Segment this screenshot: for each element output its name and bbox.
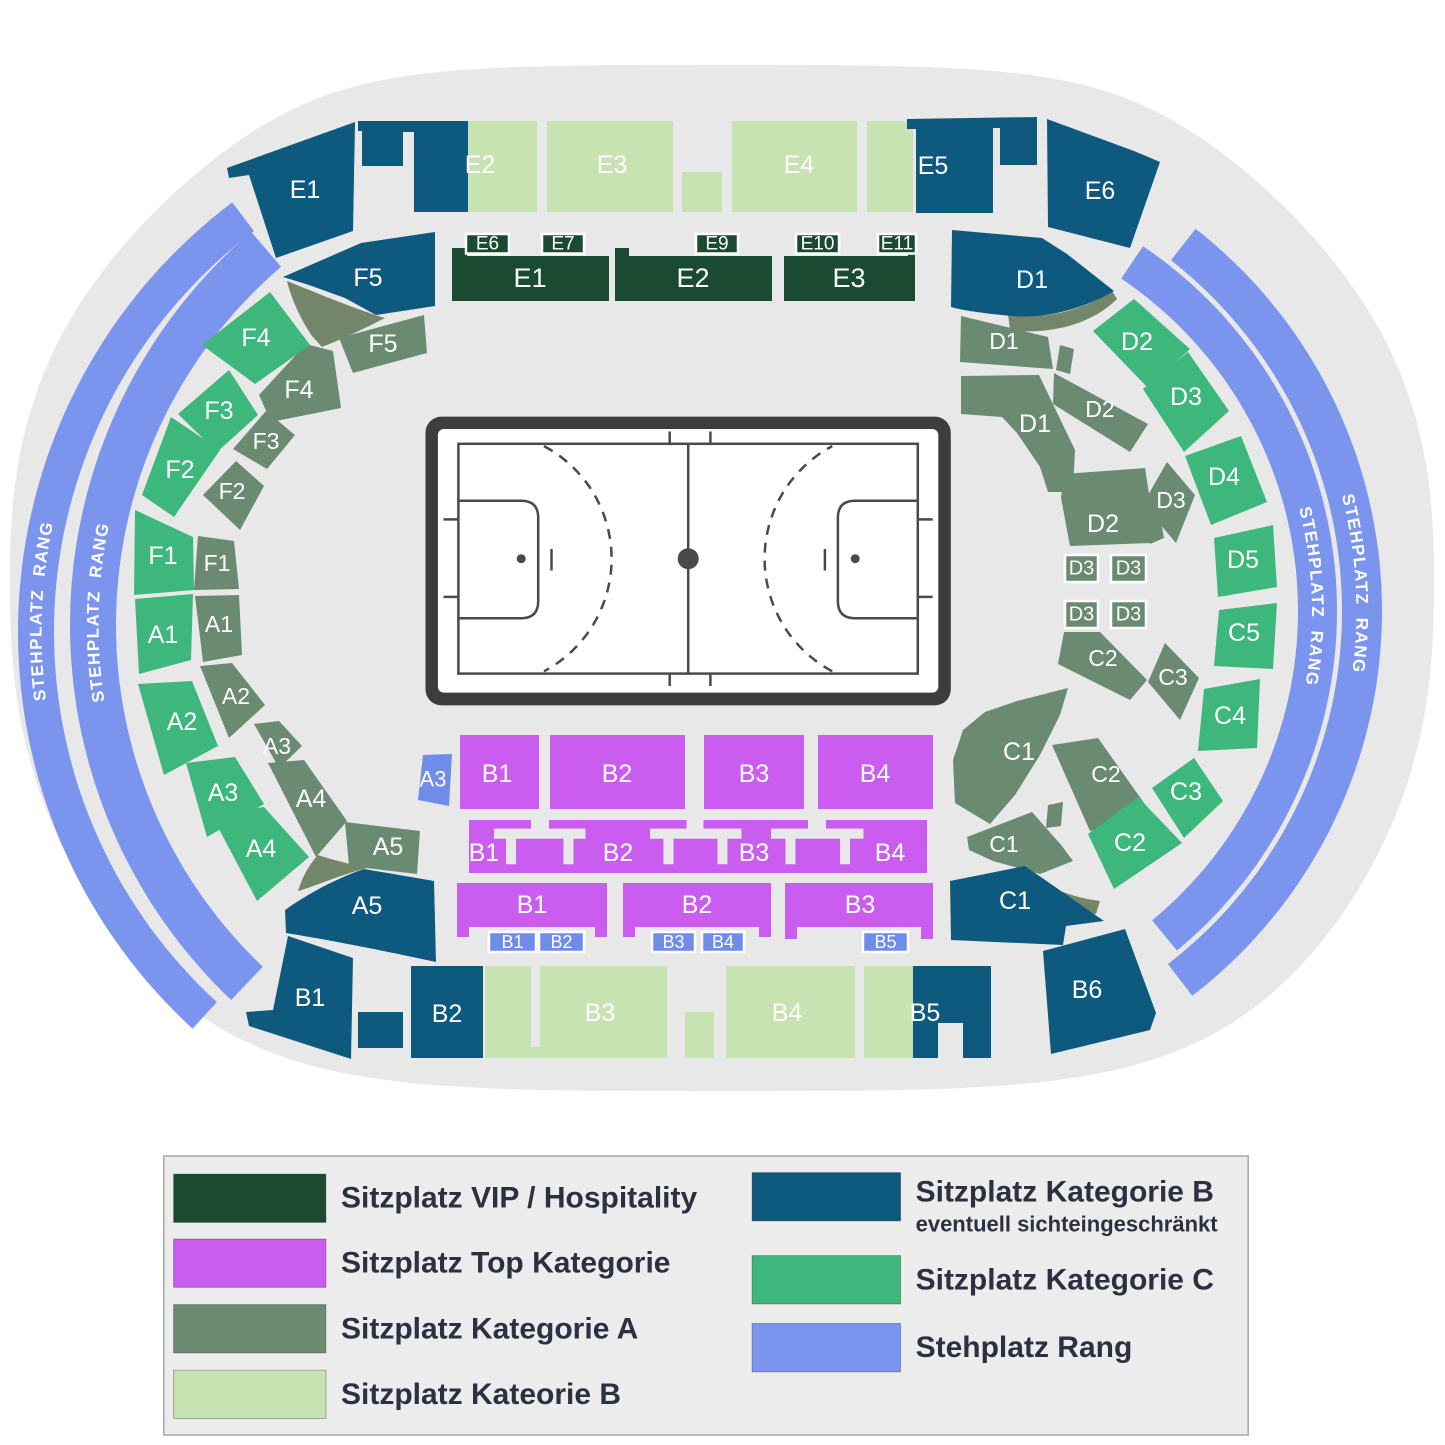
svg-text:D3: D3 bbox=[1170, 383, 1202, 411]
svg-text:A5: A5 bbox=[352, 892, 383, 920]
svg-text:E10: E10 bbox=[801, 234, 835, 255]
svg-text:C5: C5 bbox=[1228, 619, 1260, 647]
svg-text:D3: D3 bbox=[1116, 558, 1142, 580]
svg-text:F1: F1 bbox=[204, 550, 231, 576]
svg-text:B1: B1 bbox=[517, 891, 548, 919]
svg-text:D4: D4 bbox=[1208, 463, 1240, 491]
svg-text:F2: F2 bbox=[165, 456, 194, 484]
svg-text:F2: F2 bbox=[219, 478, 246, 504]
svg-text:E5: E5 bbox=[918, 152, 949, 180]
svg-text:B3: B3 bbox=[662, 932, 684, 952]
svg-text:B2: B2 bbox=[682, 891, 713, 919]
svg-text:A3: A3 bbox=[420, 767, 447, 792]
svg-text:B3: B3 bbox=[739, 760, 770, 788]
svg-text:B2: B2 bbox=[432, 1000, 463, 1028]
svg-text:B5: B5 bbox=[910, 999, 941, 1027]
svg-text:eventuell sichteingeschränkt: eventuell sichteingeschränkt bbox=[916, 1212, 1219, 1237]
svg-text:E3: E3 bbox=[597, 151, 628, 179]
svg-text:A3: A3 bbox=[208, 779, 239, 807]
svg-text:Sitzplatz Kategorie B: Sitzplatz Kategorie B bbox=[916, 1176, 1214, 1209]
svg-text:F4: F4 bbox=[241, 324, 270, 352]
svg-text:D1: D1 bbox=[989, 328, 1018, 354]
svg-text:C3: C3 bbox=[1170, 778, 1202, 806]
svg-text:Sitzplatz VIP / Hospitality: Sitzplatz VIP / Hospitality bbox=[341, 1182, 697, 1215]
svg-text:D5: D5 bbox=[1227, 546, 1259, 574]
svg-text:B5: B5 bbox=[874, 932, 896, 952]
svg-text:E4: E4 bbox=[784, 151, 815, 179]
svg-text:E2: E2 bbox=[465, 151, 496, 179]
svg-text:B4: B4 bbox=[860, 760, 891, 788]
svg-text:B4: B4 bbox=[712, 932, 734, 952]
svg-text:F4: F4 bbox=[284, 376, 313, 404]
svg-text:Stehplatz Rang: Stehplatz Rang bbox=[916, 1331, 1133, 1364]
svg-text:E9: E9 bbox=[705, 234, 728, 255]
svg-text:A2: A2 bbox=[167, 708, 198, 736]
svg-text:E7: E7 bbox=[551, 234, 574, 255]
svg-text:C2: C2 bbox=[1114, 829, 1146, 857]
svg-text:E3: E3 bbox=[832, 263, 865, 293]
svg-text:A1: A1 bbox=[148, 621, 179, 649]
svg-text:B3: B3 bbox=[845, 891, 876, 919]
svg-text:A1: A1 bbox=[205, 611, 233, 637]
svg-text:D1: D1 bbox=[1019, 410, 1051, 438]
svg-text:C1: C1 bbox=[1003, 738, 1035, 766]
svg-text:A5: A5 bbox=[373, 833, 404, 861]
svg-text:D1: D1 bbox=[1016, 266, 1048, 294]
svg-text:C2: C2 bbox=[1088, 645, 1117, 671]
svg-text:B2: B2 bbox=[602, 760, 633, 788]
svg-text:D2: D2 bbox=[1087, 510, 1119, 538]
svg-text:D3: D3 bbox=[1156, 487, 1185, 513]
svg-text:E6: E6 bbox=[1085, 177, 1116, 205]
svg-text:D3: D3 bbox=[1069, 604, 1095, 626]
svg-text:D2: D2 bbox=[1121, 328, 1153, 356]
svg-text:F5: F5 bbox=[353, 264, 382, 292]
svg-text:Sitzplatz Top Kategorie: Sitzplatz Top Kategorie bbox=[341, 1247, 670, 1280]
svg-text:B2: B2 bbox=[603, 839, 634, 867]
svg-text:C1: C1 bbox=[989, 831, 1018, 857]
svg-text:F3: F3 bbox=[204, 397, 233, 425]
svg-text:A4: A4 bbox=[246, 835, 277, 863]
svg-text:Sitzplatz Kategorie A: Sitzplatz Kategorie A bbox=[341, 1312, 638, 1345]
svg-text:A3: A3 bbox=[263, 733, 291, 759]
svg-text:B3: B3 bbox=[585, 999, 616, 1027]
svg-text:A4: A4 bbox=[296, 785, 327, 813]
svg-text:F5: F5 bbox=[368, 330, 397, 358]
svg-text:F1: F1 bbox=[148, 542, 177, 570]
svg-text:Sitzplatz Kategorie C: Sitzplatz Kategorie C bbox=[916, 1263, 1214, 1296]
svg-text:C1: C1 bbox=[999, 887, 1031, 915]
svg-text:B1: B1 bbox=[482, 760, 513, 788]
svg-text:D2: D2 bbox=[1085, 396, 1114, 422]
svg-text:B1: B1 bbox=[469, 839, 500, 867]
svg-text:E6: E6 bbox=[476, 234, 499, 255]
svg-text:D3: D3 bbox=[1116, 604, 1142, 626]
svg-text:Sitzplatz Kateorie B: Sitzplatz Kateorie B bbox=[341, 1378, 621, 1411]
svg-text:C4: C4 bbox=[1214, 702, 1246, 730]
svg-text:B4: B4 bbox=[772, 999, 803, 1027]
svg-text:B3: B3 bbox=[739, 839, 770, 867]
svg-text:D3: D3 bbox=[1069, 558, 1095, 580]
svg-text:E1: E1 bbox=[513, 263, 546, 293]
svg-text:B1: B1 bbox=[501, 932, 523, 952]
svg-text:B6: B6 bbox=[1072, 976, 1103, 1004]
svg-text:F3: F3 bbox=[253, 428, 280, 454]
svg-text:B4: B4 bbox=[875, 839, 906, 867]
svg-text:B1: B1 bbox=[295, 984, 326, 1012]
svg-text:E2: E2 bbox=[676, 263, 709, 293]
svg-text:C2: C2 bbox=[1091, 761, 1120, 787]
svg-text:A2: A2 bbox=[222, 683, 250, 709]
svg-text:E1: E1 bbox=[290, 176, 321, 204]
svg-text:E11: E11 bbox=[881, 234, 913, 255]
svg-text:B2: B2 bbox=[550, 932, 572, 952]
svg-text:C3: C3 bbox=[1158, 664, 1187, 690]
